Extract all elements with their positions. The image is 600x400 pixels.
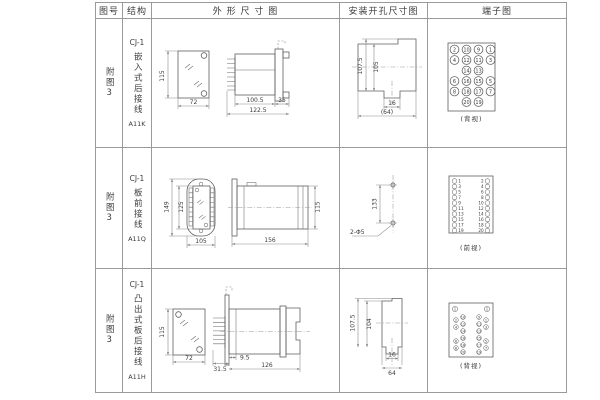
terminal-number: 14: [478, 212, 484, 217]
terminal-cell-a11q: 1 2 3 4 5 6 7 8 9 10 11 12 13 14 15 16 1…: [428, 148, 566, 269]
dim-label: 122.5: [249, 107, 266, 114]
hatch-mark: [185, 64, 193, 70]
pin-comb: [227, 59, 235, 90]
terminal-number: 19: [458, 228, 464, 233]
header-terminal: 端子图: [428, 3, 566, 19]
dim-label: 72: [190, 99, 198, 106]
hatch-mark: [191, 336, 199, 342]
header-structure-label: 结构: [127, 4, 147, 17]
dim-label: 35: [278, 97, 286, 104]
header-structure: 结构: [123, 3, 152, 19]
dim-label: 149: [164, 201, 171, 213]
terminal-number: 17: [475, 89, 481, 95]
dim-label: 115: [159, 70, 166, 82]
dim-label: 115: [315, 201, 322, 213]
terminal-number: 18: [478, 223, 484, 228]
terminal-number: 15: [475, 79, 481, 85]
terminal-number: 10: [460, 315, 464, 319]
terminal-diagram-a11h: 2 10 9 1 4 12 11 3 14 13 6 16 15 5 8 18 …: [429, 270, 566, 392]
dim-label: 72: [185, 355, 193, 362]
terminal-number: 18: [460, 343, 464, 347]
figure-number: 附图3: [105, 314, 114, 347]
structure-model: CJ-1: [130, 280, 145, 289]
terminal-number: 1: [488, 47, 491, 53]
header-terminal-label: 端子图: [482, 4, 512, 17]
terminal-number: 15: [458, 217, 464, 222]
terminal-number: 5: [488, 79, 491, 85]
terminal-number: 17: [458, 223, 464, 228]
terminal-number: 7: [488, 89, 491, 95]
structure-code: A11H: [128, 373, 146, 381]
terminal-number: 5: [458, 190, 461, 195]
terminal-number: 1: [484, 318, 486, 322]
side-dims: 9.5 31.5 126: [213, 350, 300, 373]
figure-number: 附图3: [105, 192, 114, 225]
terminal-number: 16: [478, 217, 484, 222]
dim-label: 100.5: [246, 97, 263, 104]
terminal-number: 12: [460, 322, 464, 326]
terminal-cell-a11k: 2 10 9 1 4 12 11 3 14 13 6 16 15 5 8 18 …: [428, 19, 566, 148]
hatch-mark: [194, 81, 202, 87]
view-label: (背视): [459, 361, 481, 370]
terminal-number: 18: [463, 89, 469, 95]
dim-label: 125: [178, 201, 185, 213]
dim-label: 64: [388, 370, 396, 377]
mounting-cell-a11q: 133 2-Φ5: [340, 148, 428, 269]
terminal-number: 2: [454, 318, 456, 322]
terminal-number: 8: [481, 195, 484, 200]
screw-icon: [195, 188, 199, 192]
terminal-number: 9: [476, 47, 479, 53]
terminal-number: 11: [476, 322, 480, 326]
terminal-number: 14: [460, 329, 465, 333]
structure-desc: 凸出式板后接线: [133, 294, 142, 368]
hatch-mark: [180, 320, 188, 326]
terminal-number: 6: [481, 190, 484, 195]
terminals: 1 2 3 4 5 6 7 8 9 10 11 12 13 14 15 16 1…: [452, 179, 490, 234]
terminal-number: 16: [460, 336, 464, 340]
dim-label: 156: [264, 237, 276, 244]
structure-cell-a11q: CJ-1 板前接线 A11Q: [123, 148, 152, 269]
terminal-number: 6: [454, 339, 456, 343]
terminals: 2 10 9 1 4 12 11 3 14 13 6 16 15 5 8 18 …: [453, 314, 488, 354]
terminal-number: 12: [463, 58, 469, 64]
terminal-number: 2: [481, 179, 484, 184]
terminal-number: 3: [488, 58, 491, 64]
terminal-number: 20: [460, 350, 464, 354]
hatch-mark: [197, 200, 204, 205]
drill-holes: [389, 175, 397, 233]
mount-dims: 107.5 104 16 64: [350, 298, 403, 377]
dim-label: 126: [261, 362, 273, 369]
terminal-number: 2: [452, 47, 455, 53]
header-mounting: 安装开孔尺寸图: [340, 3, 428, 19]
terminal-number: 7: [484, 346, 486, 350]
terminal-number: 8: [452, 89, 455, 95]
structure-cell-a11h: CJ-1 凸出式板后接线 A11H: [123, 269, 152, 392]
screw-icon: [176, 311, 182, 317]
view-label: (前视): [459, 243, 481, 252]
terminal-number: 14: [463, 68, 469, 74]
terminal-number: 3: [458, 184, 461, 189]
side-view: [228, 179, 312, 236]
terminal-number: 3: [484, 325, 486, 329]
outline-drawing-a11k: 115 72 100.5 35 122.5: [152, 19, 339, 147]
mounting-drawing-a11h: 107.5 104 16 64: [340, 270, 427, 392]
dim-label: 115: [159, 326, 166, 338]
outline-drawing-a11q: 149 125 105 115 156: [152, 148, 339, 268]
terminal-number: 11: [458, 206, 464, 211]
terminal-number: 19: [476, 350, 480, 354]
structure-desc: 嵌入式后接线: [133, 52, 142, 115]
dim-label: 107.5: [357, 57, 364, 74]
cutout-outline: [358, 39, 416, 98]
hole-note-label: 2-Φ5: [350, 229, 365, 236]
front-view: [173, 309, 205, 355]
terminal-number: 17: [476, 343, 480, 347]
spec-table: 图号 结构 外 形 尺 寸 图 安装开孔尺寸图 端子图 附图3 CJ-1 嵌入式…: [95, 2, 567, 393]
header-outline-label: 外 形 尺 寸 图: [213, 4, 278, 17]
terminal-number: 7: [458, 195, 461, 200]
outline-cell-a11h: 115 72 9.5 31.5: [152, 269, 340, 392]
dim-label: 105: [195, 238, 207, 245]
terminal-diagram-a11q: 1 2 3 4 5 6 7 8 9 10 11 12 13 14 15 16 1…: [429, 148, 566, 268]
side-view: [213, 287, 310, 365]
structure-cell-a11k: CJ-1 嵌入式后接线 A11K: [123, 19, 152, 148]
terminal-number: 5: [484, 339, 486, 343]
outline-cell-a11k: 115 72 100.5 35 122.5: [152, 19, 340, 148]
terminal-number: 13: [475, 68, 481, 74]
dim-label: (64): [381, 109, 393, 116]
screw-icon: [204, 223, 208, 227]
terminal-diagram-a11k: 2 10 9 1 4 12 11 3 14 13 6 16 15 5 8 18 …: [429, 19, 566, 147]
pin-comb: [213, 318, 225, 344]
terminal-number: 20: [463, 100, 469, 106]
corner-screws: [452, 306, 489, 311]
mounting-cell-a11h: 107.5 104 16 64: [340, 269, 428, 392]
mounting-cell-a11k: 107.5 105 16 (64): [340, 19, 428, 148]
terminal-number: 10: [478, 201, 484, 206]
dim-label: 105: [373, 61, 380, 73]
terminal-cell-a11h: 2 10 9 1 4 12 11 3 14 13 6 16 15 5 8 18 …: [428, 269, 566, 392]
mount-dims: 133 2-Φ5: [350, 185, 391, 236]
mount-dims: 107.5 105 16 (64): [357, 39, 416, 119]
terminal-number: 13: [476, 329, 480, 333]
screw-icon: [197, 346, 203, 352]
terminal-number: 8: [454, 346, 456, 350]
header-figure-label: 图号: [99, 4, 119, 17]
dim-label: 9.5: [240, 354, 250, 361]
terminal-number: 19: [475, 100, 481, 106]
header-figure: 图号: [96, 3, 123, 19]
front-dims: 115 72: [159, 309, 205, 365]
screw-icon: [199, 229, 203, 233]
figure-number: 附图3: [105, 67, 114, 100]
hook-line: [278, 41, 285, 49]
terminal-number: 1: [458, 179, 461, 184]
header-outline: 外 形 尺 寸 图: [152, 3, 340, 19]
figure-cell-a11h: 附图3: [96, 269, 123, 392]
terminal-number: 20: [478, 228, 484, 233]
outline-cell-a11q: 149 125 105 115 156: [152, 148, 340, 269]
terminal-number: 15: [476, 336, 480, 340]
header-mounting-label: 安装开孔尺寸图: [348, 4, 418, 17]
terminal-number: 12: [478, 206, 484, 211]
front-view: [187, 179, 215, 236]
terminal-number: 4: [452, 58, 455, 64]
dim-label: 31.5: [213, 366, 227, 373]
hook-line: [226, 287, 232, 295]
structure-model: CJ-1: [130, 38, 145, 47]
screw-icon: [199, 182, 203, 186]
mounting-drawing-a11q: 133 2-Φ5: [340, 148, 427, 268]
terminal-number: 9: [458, 201, 461, 206]
terminal-number: 4: [481, 184, 484, 189]
terminal-number: 10: [463, 47, 469, 53]
side-view: [227, 41, 289, 101]
figure-cell-a11q: 附图3: [96, 148, 123, 269]
dim-label: 16: [388, 100, 396, 107]
dim-label: 104: [366, 318, 373, 330]
dim-label: 107.5: [350, 314, 357, 331]
terminal-number: 13: [458, 212, 464, 217]
terminal-number: 6: [452, 79, 455, 85]
view-label: (背视): [460, 114, 482, 123]
dim-label: 16: [388, 351, 396, 358]
screw-icon: [201, 53, 207, 59]
terminal-number: 16: [463, 79, 469, 85]
front-dims: 115 72: [159, 51, 209, 109]
terminals: 2 10 9 1 4 12 11 3 14 13 6 16 15 5 8 18 …: [450, 45, 495, 106]
terminal-number: 9: [477, 315, 479, 319]
hatch-mark: [199, 215, 206, 220]
structure-model: CJ-1: [130, 174, 145, 183]
terminal-number: 11: [475, 58, 481, 64]
structure-code: A11Q: [128, 235, 146, 243]
screw-icon: [201, 91, 207, 97]
dim-label: 133: [372, 198, 379, 210]
structure-desc: 板前接线: [133, 188, 142, 230]
structure-code: A11K: [129, 120, 146, 128]
figure-cell-a11k: 附图3: [96, 19, 123, 148]
outline-drawing-a11h: 115 72 9.5 31.5: [152, 270, 339, 392]
mounting-drawing-a11k: 107.5 105 16 (64): [340, 19, 427, 147]
front-view: [178, 51, 209, 98]
